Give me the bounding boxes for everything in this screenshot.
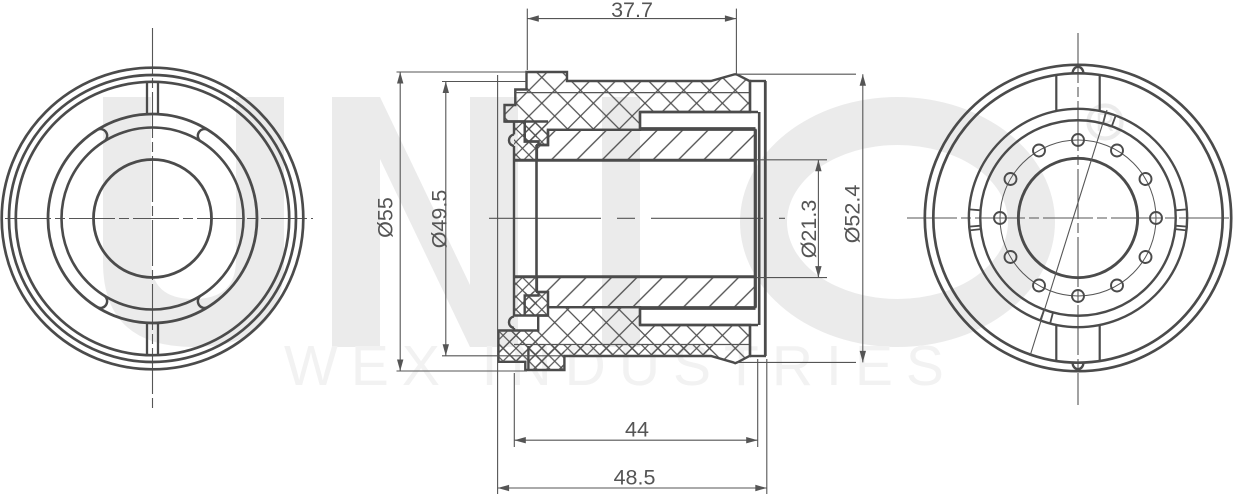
svg-text:Ø21.3: Ø21.3 — [797, 200, 821, 259]
svg-text:44: 44 — [625, 418, 649, 442]
svg-text:37.7: 37.7 — [611, 0, 653, 22]
svg-text:48.5: 48.5 — [614, 466, 656, 490]
svg-text:Ø52.4: Ø52.4 — [841, 185, 865, 244]
svg-text:Ø55: Ø55 — [374, 197, 398, 238]
svg-text:Ø49.5: Ø49.5 — [428, 190, 452, 249]
